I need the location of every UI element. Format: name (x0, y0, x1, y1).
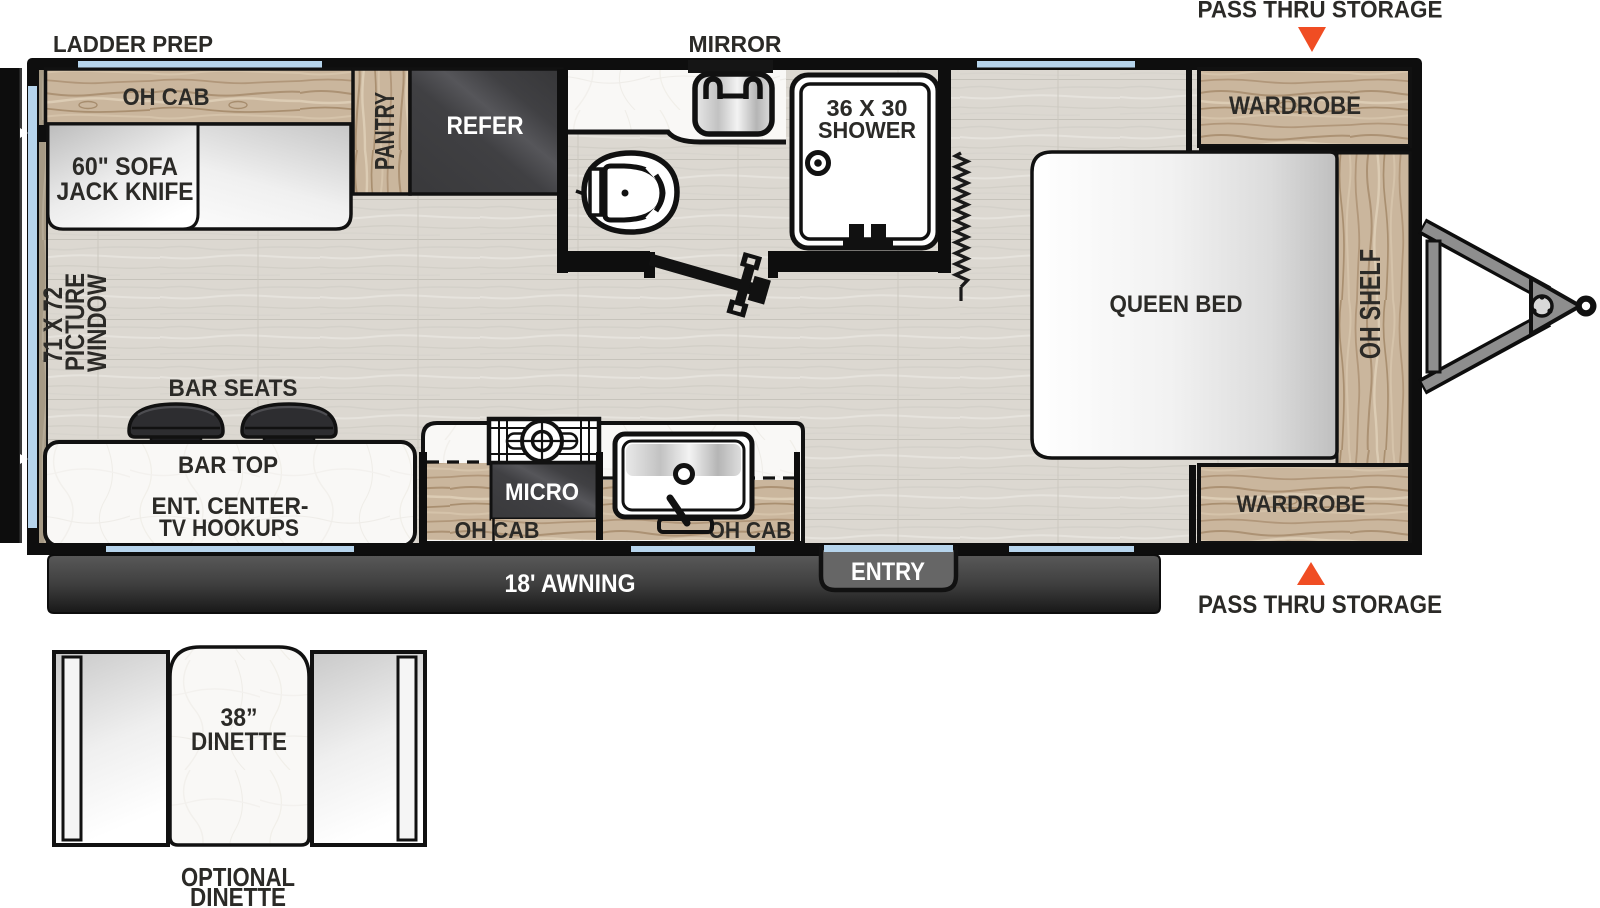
svg-text:PANTRY: PANTRY (369, 92, 400, 170)
svg-text:MIRROR: MIRROR (689, 31, 782, 57)
svg-text:REFER: REFER (447, 112, 524, 140)
svg-text:60" SOFA: 60" SOFA (72, 153, 178, 181)
svg-text:PASS THRU STORAGE: PASS THRU STORAGE (1198, 0, 1443, 24)
svg-text:WARDROBE: WARDROBE (1237, 491, 1366, 518)
svg-text:MICRO: MICRO (505, 479, 579, 506)
svg-text:OH CAB: OH CAB (455, 517, 540, 543)
svg-text:WINDOW: WINDOW (82, 274, 112, 372)
svg-text:OH CAB: OH CAB (709, 517, 792, 543)
svg-text:WARDROBE: WARDROBE (1229, 92, 1361, 120)
svg-text:DINETTE: DINETTE (190, 882, 286, 908)
svg-text:18' AWNING: 18' AWNING (505, 570, 636, 598)
svg-text:OH SHELF: OH SHELF (1355, 249, 1387, 359)
svg-text:ENTRY: ENTRY (851, 558, 925, 586)
svg-text:BAR TOP: BAR TOP (178, 452, 278, 479)
svg-text:PASS THRU STORAGE: PASS THRU STORAGE (1198, 591, 1442, 619)
svg-text:SHOWER: SHOWER (818, 117, 916, 143)
svg-text:OH CAB: OH CAB (123, 84, 210, 111)
svg-text:LADDER PREP: LADDER PREP (53, 31, 213, 57)
svg-text:TV HOOKUPS: TV HOOKUPS (159, 515, 299, 542)
svg-text:QUEEN BED: QUEEN BED (1110, 291, 1243, 318)
svg-text:DINETTE: DINETTE (191, 728, 287, 756)
svg-text:BAR SEATS: BAR SEATS (169, 375, 298, 402)
svg-text:JACK KNIFE: JACK KNIFE (57, 178, 194, 206)
